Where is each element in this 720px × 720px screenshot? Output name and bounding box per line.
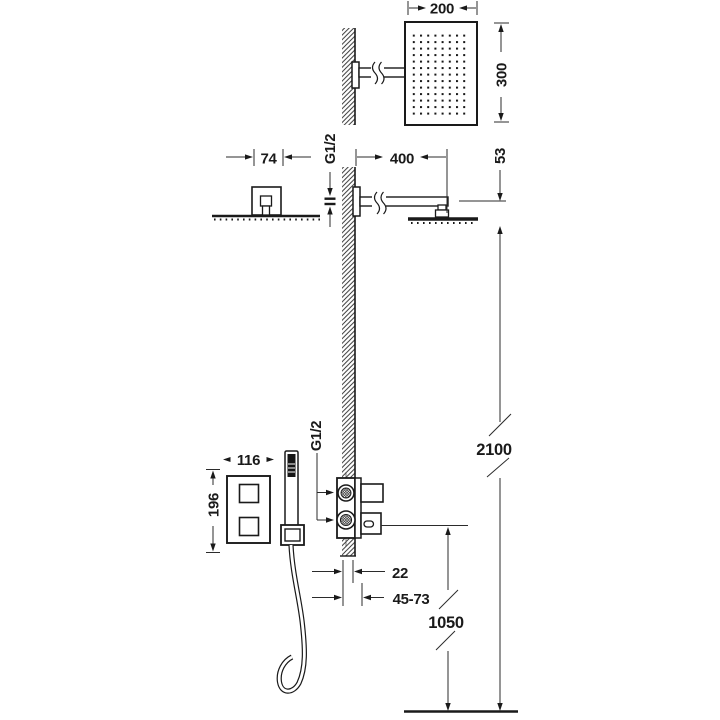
arrow-left-icon: [459, 5, 467, 10]
valve-knob-top-knurl: [341, 488, 351, 498]
dim-label-53: 53: [492, 148, 509, 164]
arrow-right-icon: [267, 457, 275, 462]
dim-label-196: 196: [206, 493, 223, 517]
dim-head-offset: 53: [459, 148, 509, 201]
arrow-right-icon: [326, 517, 334, 522]
dim-plate-height: 196: [206, 470, 223, 553]
shower-arm-side-view: [353, 187, 478, 223]
arrow-down-icon: [445, 703, 450, 711]
arrow-right-icon: [245, 154, 253, 159]
arrow-right-icon: [375, 154, 383, 159]
shower-head-front-view: [352, 22, 477, 125]
hand-shower-spray-face: [288, 454, 296, 477]
head-connector-neck: [438, 205, 446, 210]
valve-front-view: [227, 476, 270, 543]
dim-head-width: 200: [408, 1, 477, 18]
arrow-up-icon: [498, 24, 503, 32]
break-slash-icon: [487, 458, 509, 477]
arrow-left-icon: [223, 457, 231, 462]
dim-valve-height: 1050: [381, 526, 468, 712]
valve-thread-callout: G1/2: [309, 421, 334, 523]
dim-plate-width: 116: [223, 452, 274, 469]
thread-stub-mark: [325, 203, 336, 205]
arrow-right-icon: [334, 595, 342, 600]
dim-label-1050: 1050: [428, 614, 464, 632]
dim-rosette-width: 74: [226, 149, 311, 168]
valve-outlet-slot: [364, 521, 374, 527]
break-slash-icon: [439, 590, 458, 609]
valve-knob-bottom-knurl: [340, 514, 351, 525]
arm-stub-top-view: [261, 196, 272, 206]
dim-head-height: 300: [494, 23, 511, 122]
arrow-down-icon: [210, 544, 215, 552]
arrow-right-icon: [334, 569, 342, 574]
arrow-left-icon: [420, 154, 428, 159]
valve-front-plate-side: [355, 478, 361, 538]
arrow-down-icon: [497, 703, 502, 711]
arrow-up-icon: [210, 471, 215, 479]
hand-shower: [279, 451, 304, 691]
shower-arm-top-view: [212, 187, 320, 220]
top-thread-callout: G1/2: [323, 134, 339, 227]
arrow-down-icon: [497, 193, 502, 201]
thread-stub-mark: [325, 198, 336, 200]
arrow-left-icon: [284, 154, 292, 159]
dim-wall-depth-range: 45-73: [312, 583, 429, 608]
arrow-up-icon: [445, 527, 450, 535]
arrow-up-icon: [497, 226, 502, 234]
technical-drawing-canvas: 200 300 74: [0, 0, 720, 720]
arrow-right-icon: [326, 490, 334, 495]
valve-control-bottom: [240, 518, 259, 536]
dim-label-22: 22: [392, 565, 408, 582]
dim-label-74: 74: [260, 151, 277, 168]
thread-label-top: G1/2: [323, 134, 339, 164]
valve-side-view: [337, 472, 383, 546]
break-slash-icon: [436, 631, 455, 650]
dim-label-300: 300: [494, 63, 511, 87]
arrow-left-icon: [363, 595, 371, 600]
dim-label-200: 200: [430, 1, 454, 18]
valve-outlet-top: [361, 484, 383, 502]
hand-shower-holder-inner: [285, 529, 300, 541]
dim-label-116: 116: [237, 452, 260, 469]
spray-nozzle-grid: [413, 31, 471, 117]
thread-label-valve: G1/2: [309, 421, 325, 451]
shower-installation-diagram: 200 300 74: [0, 0, 720, 720]
arrow-down-icon: [327, 188, 332, 196]
valve-control-top: [240, 485, 259, 503]
dim-overhead-height: 2100: [476, 226, 512, 711]
arrow-up-icon: [327, 207, 332, 215]
dim-label-400: 400: [390, 151, 414, 168]
arrow-down-icon: [498, 113, 503, 121]
arm-wall-flange-front: [352, 62, 359, 88]
arm-wall-flange-side: [353, 187, 360, 216]
dim-label-45-73: 45-73: [393, 591, 430, 608]
arrow-right-icon: [418, 5, 426, 10]
dim-label-2100: 2100: [476, 441, 512, 459]
arrow-left-icon: [354, 569, 362, 574]
arm-stub-top-view: [263, 206, 270, 215]
